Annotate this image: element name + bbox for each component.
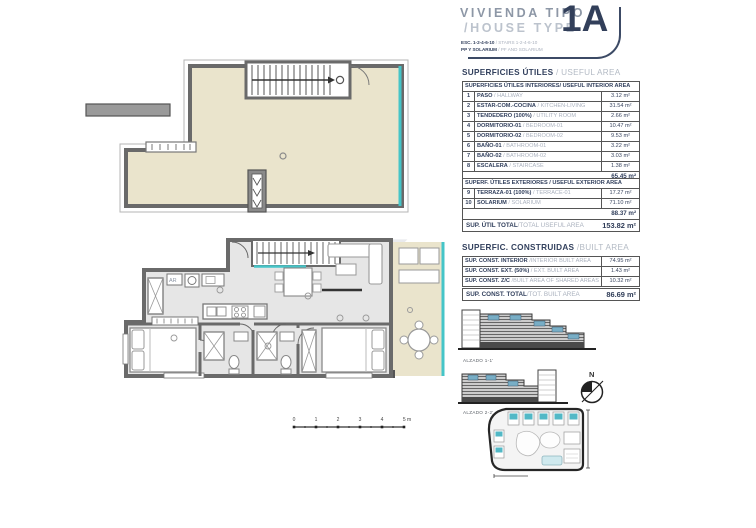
- table-row: SUP. CONST. EXT. (50%) / EXT. BUILT AREA…: [463, 266, 639, 276]
- scale-tick: 3: [359, 417, 362, 423]
- plan-sheet: K: [0, 0, 756, 528]
- pool: [542, 456, 562, 465]
- area-value: 10.32 m²: [601, 277, 639, 286]
- area-value: 3.22 m²: [601, 142, 639, 151]
- scale-tick: 5 m: [403, 417, 411, 423]
- scale-tick: 1: [315, 417, 318, 423]
- scale-tick: 4: [381, 417, 384, 423]
- table-row: 6BAÑO-01 / BATHROOM-013.22 m²: [463, 141, 639, 151]
- kitchen-counter: [203, 304, 267, 319]
- built-area-table: SUP. CONST. INTERIOR /INTERIOR BUILT ARE…: [462, 256, 640, 287]
- area-value: 3.03 m²: [601, 152, 639, 161]
- table-row: SUP. CONST. INTERIOR /INTERIOR BUILT ARE…: [463, 257, 639, 266]
- window: [123, 334, 128, 364]
- bedroom-01: [130, 328, 196, 372]
- unit-code: 1A: [561, 0, 608, 40]
- table-header: SUPERFICIES ÚTILES INTERIORES/ USEFUL IN…: [463, 82, 639, 91]
- solarium-staircase: [246, 62, 369, 98]
- tower-footprints-top: [508, 412, 579, 425]
- terrace: [387, 242, 443, 378]
- scale-tick: 0: [293, 417, 296, 423]
- table-row: 8ESCALERA / STAIRCASE1.38 m²: [463, 161, 639, 171]
- vent-strip: [146, 142, 196, 152]
- elevation-2-drawing: [458, 366, 570, 408]
- staircase: [252, 240, 340, 267]
- title-sub2: PP Y SOLARIUM / PF AND SOLARIUM: [461, 47, 543, 53]
- bedroom-02: [302, 328, 386, 372]
- elevation-1-label: ALZADO 1-1': [463, 358, 493, 363]
- elevation-1-drawing: [458, 306, 598, 356]
- total-useful-area: SUP. ÚTIL TOTAL/TOTAL USEFUL AREA 153.82…: [462, 219, 640, 232]
- total-built-value: 86.69 m²: [606, 290, 636, 299]
- scale-bar: 0 1 2 3 4 5 m: [286, 410, 416, 436]
- table-row: 5DORMITORIO-02 / BEDROOM-029.53 m²: [463, 131, 639, 141]
- area-value: 71.10 m²: [601, 199, 639, 208]
- area-value: 31.54 m²: [601, 102, 639, 111]
- area-value: 1.38 m²: [601, 162, 639, 171]
- table-row: 4DORMITORIO-01 / BEDROOM-0110.47 m²: [463, 121, 639, 131]
- compass-n-label: N: [589, 370, 594, 379]
- window: [326, 373, 372, 378]
- title-block: VIVIENDA TIPO /HOUSE TYPE 1A ESC. 1-2-4-…: [458, 0, 648, 64]
- solarium-floor-plan: [78, 50, 410, 218]
- washing-machine: [185, 274, 199, 287]
- area-value: 9.53 m²: [601, 132, 639, 141]
- useful-interior-table: SUPERFICIES ÚTILES INTERIORES/ USEFUL IN…: [462, 81, 640, 184]
- useful-area-heading: SUPERFICIES ÚTILES / USEFUL AREA: [462, 68, 621, 77]
- scale-tick: 2: [337, 417, 340, 423]
- table-row: 10SOLARIUM / SOLARIUM71.10 m²: [463, 198, 639, 208]
- table-row: 1PASO / HALLWAY3.12 m²: [463, 91, 639, 101]
- title-sub1: ESC. 1-2-4-6-10 / STAIRS 1-2-4-6-10: [461, 40, 537, 46]
- table-row: 9TERRAZA-01 (100%) / TERRACE-0117.27 m²: [463, 188, 639, 198]
- built-area-heading: SUPERFIC. CONSTRUIDAS /BUILT AREA: [462, 243, 629, 252]
- shaft-ladder: [248, 170, 266, 212]
- ar-closet-label: AR: [169, 278, 177, 284]
- apartment-floor-plan: AR: [108, 228, 448, 414]
- useful-exterior-table: SUPERF. ÚTILES EXTERIORES / USEFUL EXTER…: [462, 178, 640, 221]
- total-built-area: SUP. CONST. TOTAL/TOT. BUILT AREA 86.69 …: [462, 288, 640, 301]
- table-row: 3TENDEDERO (100%) / UTILITY ROOM2.66 m²: [463, 111, 639, 121]
- site-plan: [484, 404, 596, 490]
- total-useful-value: 153.82 m²: [602, 221, 636, 230]
- area-value: 17.27 m²: [601, 189, 639, 198]
- roof-beam: [86, 104, 170, 116]
- table-row: 7BAÑO-02 / BATHROOM-023.03 m²: [463, 151, 639, 161]
- window: [164, 373, 204, 378]
- table-header: SUPERF. ÚTILES EXTERIORES / USEFUL EXTER…: [463, 179, 639, 188]
- table-row: SUP. CONST. Z/C /BUILT AREA OF SHARED AR…: [463, 276, 639, 286]
- table-row: 2ESTAR-COM.-COCINA / KITCHEN-LIVING31.54…: [463, 101, 639, 111]
- area-value: 3.12 m²: [601, 92, 639, 101]
- area-value: 1.43 m²: [601, 267, 639, 276]
- dining-table: [284, 268, 312, 296]
- hatched-wall: [152, 317, 198, 325]
- area-value: 10.47 m²: [601, 122, 639, 131]
- area-value: 74.95 m²: [601, 257, 639, 266]
- title-en: /HOUSE TYPE: [464, 21, 577, 35]
- area-value: 2.66 m²: [601, 112, 639, 121]
